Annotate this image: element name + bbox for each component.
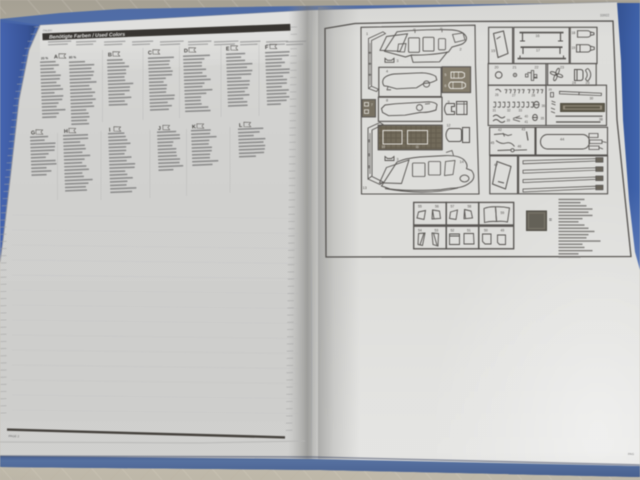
- svg-text:49: 49: [501, 228, 505, 232]
- svg-text:58: 58: [468, 205, 472, 209]
- svg-text:48: 48: [601, 172, 605, 176]
- svg-text:56: 56: [435, 205, 439, 209]
- svg-text:8: 8: [386, 99, 388, 103]
- svg-text:3: 3: [397, 59, 399, 63]
- svg-text:21: 21: [513, 66, 517, 70]
- svg-text:20: 20: [495, 66, 499, 70]
- svg-text:4: 4: [386, 70, 388, 74]
- svg-text:E: E: [226, 46, 230, 52]
- svg-text:12: 12: [447, 124, 451, 128]
- svg-text:6: 6: [445, 84, 447, 88]
- svg-text:27: 27: [512, 94, 516, 98]
- svg-text:30: 30: [590, 97, 594, 101]
- svg-text:ITALERI: ITALERI: [43, 29, 53, 32]
- svg-text:32: 32: [507, 108, 511, 112]
- svg-text:50: 50: [484, 228, 488, 232]
- svg-text:45: 45: [491, 141, 495, 145]
- svg-text:35: 35: [541, 117, 545, 121]
- svg-text:15: 15: [491, 49, 495, 53]
- svg-text:1: 1: [366, 32, 368, 36]
- svg-text:B: B: [108, 52, 112, 58]
- svg-text:28: 28: [532, 94, 536, 98]
- svg-text:55: 55: [418, 205, 422, 209]
- svg-text:11: 11: [416, 145, 420, 149]
- svg-text:7: 7: [371, 103, 373, 107]
- svg-text:53: 53: [435, 228, 439, 232]
- svg-text:59: 59: [501, 211, 505, 215]
- svg-text:25: 25: [586, 81, 590, 85]
- svg-text:57: 57: [451, 205, 455, 209]
- svg-text:14: 14: [460, 160, 464, 164]
- svg-text:33: 33: [519, 108, 523, 112]
- svg-text:41: 41: [525, 120, 529, 124]
- svg-text:46: 46: [518, 145, 522, 149]
- svg-text:=: =: [549, 218, 552, 224]
- svg-text:2: 2: [460, 48, 462, 52]
- svg-text:PAG: PAG: [628, 452, 635, 456]
- svg-text:44: 44: [560, 138, 564, 142]
- svg-text:33922: 33922: [600, 13, 610, 17]
- svg-text:43: 43: [522, 128, 526, 132]
- svg-text:K: K: [192, 124, 196, 130]
- svg-text:J: J: [158, 126, 161, 132]
- svg-text:10: 10: [382, 145, 386, 149]
- svg-text:54: 54: [418, 228, 422, 232]
- svg-text:51: 51: [467, 228, 471, 232]
- svg-text:22: 22: [535, 66, 539, 70]
- svg-text:39: 39: [507, 119, 511, 123]
- svg-text:42: 42: [498, 128, 502, 132]
- svg-text:18: 18: [572, 31, 576, 35]
- svg-text:16: 16: [536, 34, 540, 38]
- svg-text:36: 36: [542, 104, 546, 108]
- svg-text:D: D: [184, 48, 188, 54]
- svg-text:C: C: [148, 50, 152, 56]
- svg-text:31: 31: [493, 108, 497, 112]
- svg-text:26: 26: [495, 93, 499, 97]
- svg-text:24: 24: [572, 81, 576, 85]
- svg-text:G: G: [31, 130, 35, 136]
- svg-text:29: 29: [549, 88, 553, 92]
- svg-text:5: 5: [445, 73, 447, 77]
- svg-text:23: 23: [560, 65, 564, 69]
- svg-text:20 %: 20 %: [41, 56, 49, 60]
- svg-text:3: 3: [397, 158, 399, 162]
- svg-text:80 %: 80 %: [69, 55, 77, 59]
- svg-text:13: 13: [363, 186, 367, 190]
- svg-text:19: 19: [572, 46, 576, 50]
- svg-text:A: A: [54, 54, 58, 60]
- svg-text:38: 38: [599, 117, 603, 121]
- svg-text:52: 52: [451, 228, 455, 232]
- svg-text:17: 17: [536, 49, 540, 53]
- svg-text:40: 40: [525, 115, 529, 119]
- svg-text:H: H: [64, 129, 68, 135]
- svg-text:PAGE 2: PAGE 2: [8, 434, 19, 438]
